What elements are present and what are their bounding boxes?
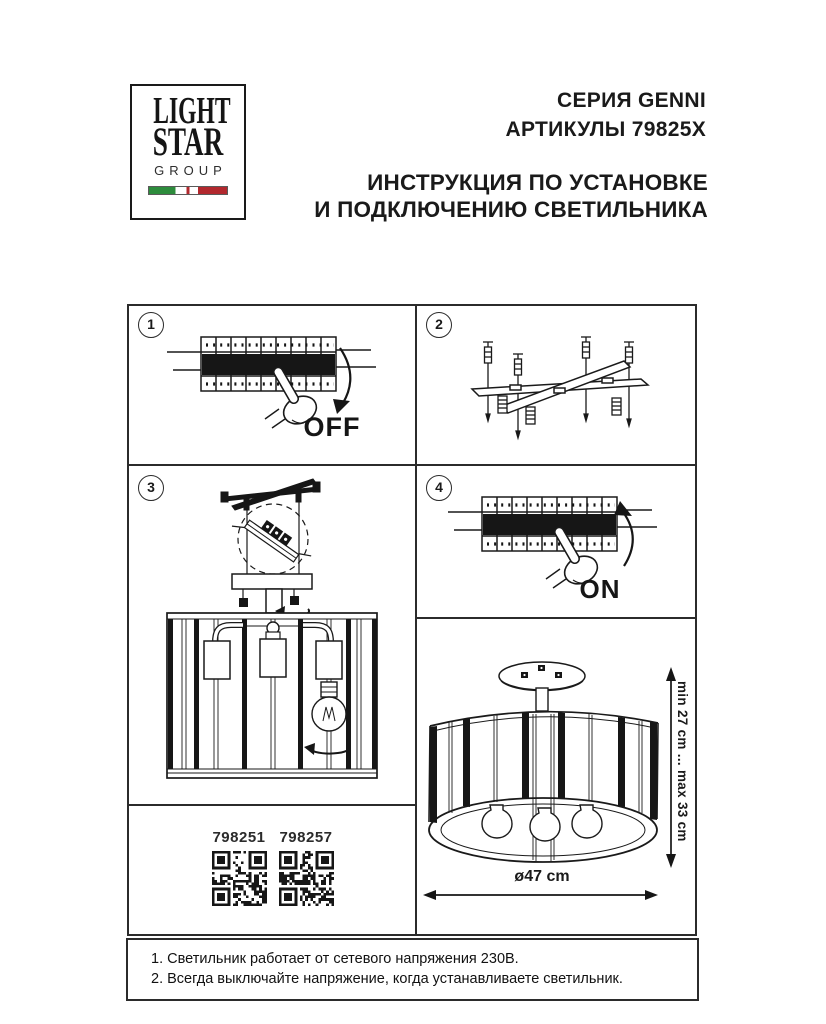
fixture-assembly-illustration — [129, 466, 415, 804]
fixture-dimensions-panel: min 27 cm ... max 33 cm ø47 cm — [417, 619, 695, 934]
fixture-drawing — [417, 619, 695, 934]
breaker-off-illustration — [129, 306, 415, 464]
articles-title: АРТИКУЛЫ 79825X — [506, 115, 706, 144]
ceiling-bracket-icon — [221, 479, 320, 510]
note-line-1: 1. Светильник работает от сетевого напря… — [151, 949, 687, 969]
step-4-number: 4 — [426, 475, 452, 501]
terminal-block-icon — [232, 506, 314, 574]
page-title: ИНСТРУКЦИЯ ПО УСТАНОВКЕ И ПОДКЛЮЧЕНИЮ СВ… — [314, 169, 708, 223]
safety-notes-box: 1. Светильник работает от сетевого напря… — [126, 938, 699, 1001]
step-4-panel: 4 — [417, 466, 695, 619]
header-series-block: СЕРИЯ GENNI АРТИКУЛЫ 79825X — [506, 86, 706, 144]
diameter-label: ø47 cm — [475, 868, 609, 886]
logo-word-group: GROUP — [132, 163, 244, 178]
logo-word-star: STAR — [150, 126, 226, 158]
instruction-title-line2: И ПОДКЛЮЧЕНИЮ СВЕТИЛЬНИКА — [314, 196, 708, 223]
qr-panel: 798251 798257 — [129, 806, 417, 934]
lightstar-logo: LIGHT STAR GROUP — [130, 84, 246, 220]
bulbs — [482, 805, 602, 841]
italian-flag-bar — [148, 186, 228, 195]
step-3-panel: 3 — [129, 466, 417, 806]
qr-item-left: 798251 — [210, 829, 268, 906]
breaker-on-illustration — [417, 466, 695, 617]
step-2-number: 2 — [426, 312, 452, 338]
step-1-panel: 1 — [129, 306, 417, 466]
mounting-brackets-illustration — [417, 306, 695, 464]
diameter-dimension-arrow — [423, 890, 658, 900]
step-3-number: 3 — [138, 475, 164, 501]
article-code-798251: 798251 — [210, 829, 268, 846]
on-label: ON — [565, 574, 635, 605]
lamp-sockets — [204, 639, 342, 679]
step-2-panel: 2 — [417, 306, 695, 466]
qr-code-left — [212, 851, 267, 906]
steps-grid: 1 — [127, 304, 697, 936]
instruction-title-line1: ИНСТРУКЦИЯ ПО УСТАНОВКЕ — [314, 169, 708, 196]
instruction-sheet: LIGHT STAR GROUP СЕРИЯ GENNI АРТИКУЛЫ 79… — [0, 0, 826, 1024]
article-code-798257: 798257 — [277, 829, 335, 846]
step-1-number: 1 — [138, 312, 164, 338]
qr-code-right — [279, 851, 334, 906]
off-label: OFF — [297, 412, 367, 443]
qr-item-right: 798257 — [277, 829, 335, 906]
note-line-2: 2. Всегда выключайте напряжение, когда у… — [151, 969, 687, 989]
series-title: СЕРИЯ GENNI — [506, 86, 706, 115]
height-range-label: min 27 cm ... max 33 cm — [675, 681, 690, 871]
